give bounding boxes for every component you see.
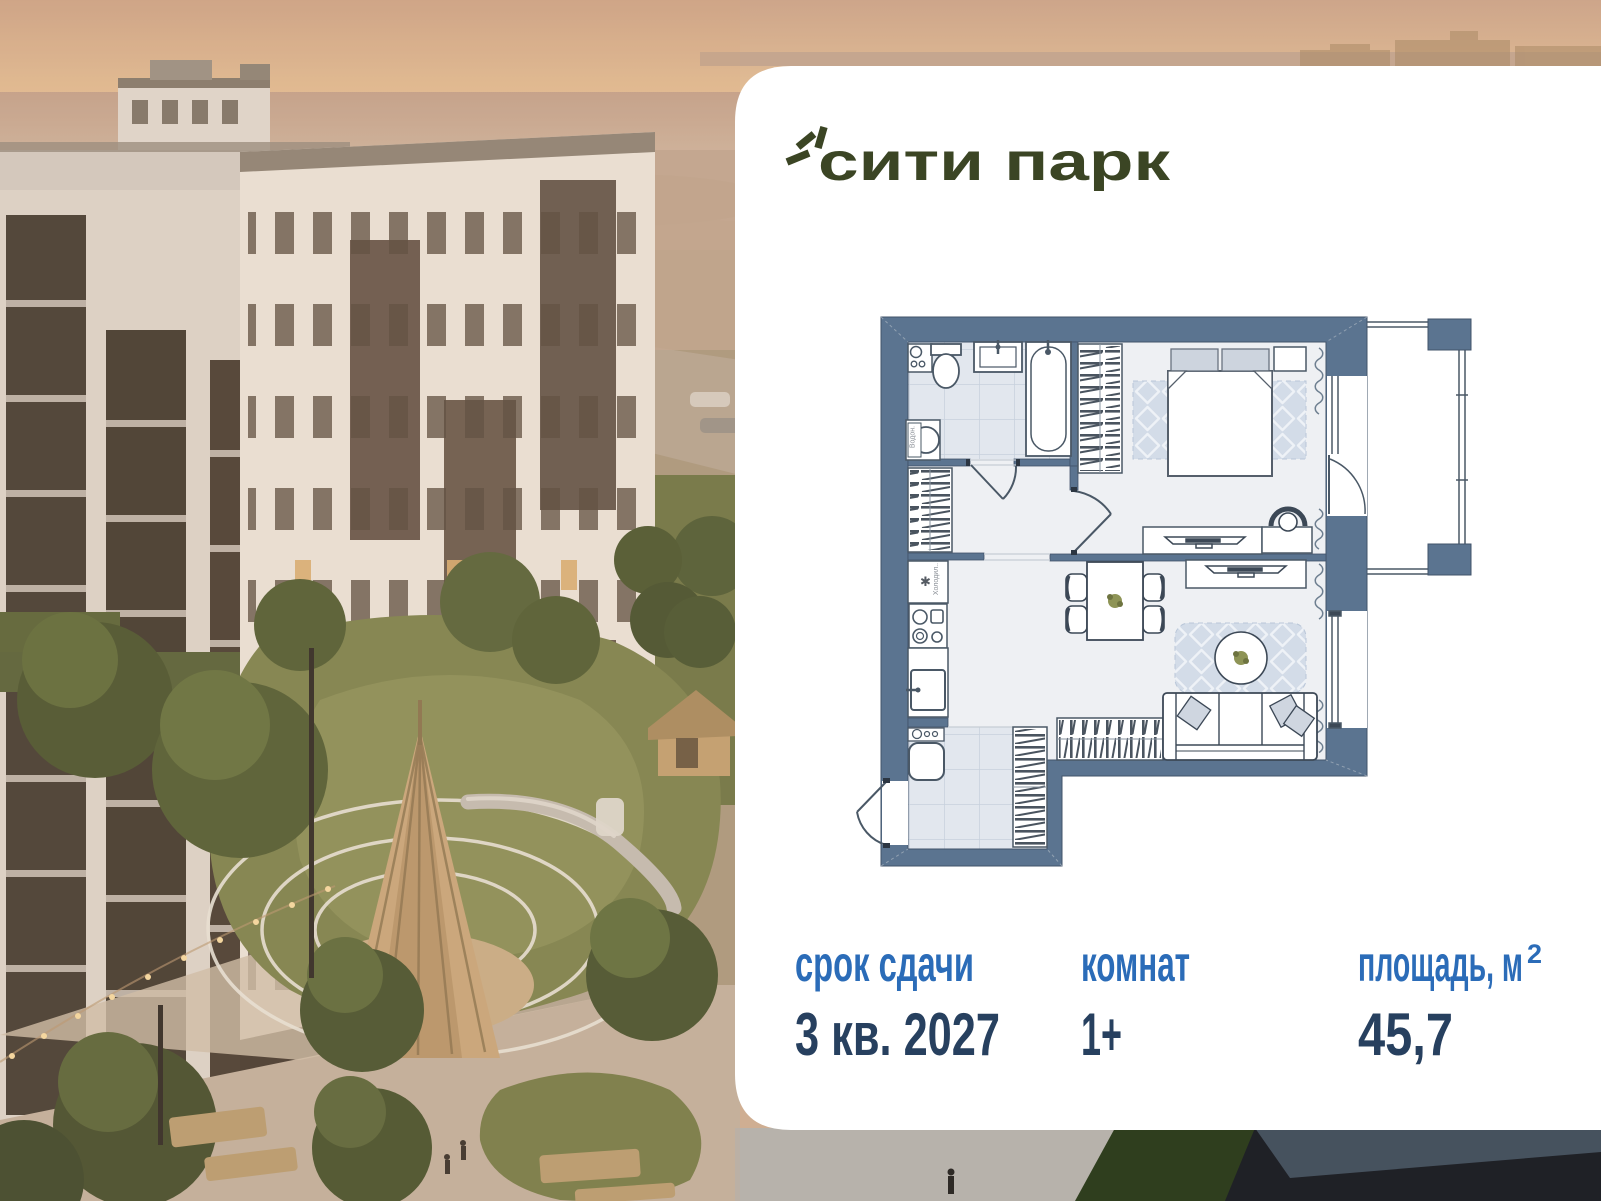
svg-text:комнат: комнат [1081, 936, 1190, 992]
svg-text:3 кв. 2027: 3 кв. 2027 [795, 1001, 1000, 1068]
svg-text:Водон.: Водон. [910, 426, 917, 448]
svg-text:площадь, м: площадь, м [1358, 936, 1523, 992]
svg-text:Холодил..: Холодил.. [933, 563, 940, 595]
svg-text:✱: ✱ [920, 574, 931, 589]
svg-text:сити парк: сити парк [818, 132, 1171, 192]
svg-text:1+: 1+ [1081, 1001, 1122, 1068]
svg-text:2: 2 [1527, 939, 1542, 969]
svg-text:45,7: 45,7 [1358, 1001, 1453, 1068]
svg-text:срок сдачи: срок сдачи [795, 936, 974, 992]
